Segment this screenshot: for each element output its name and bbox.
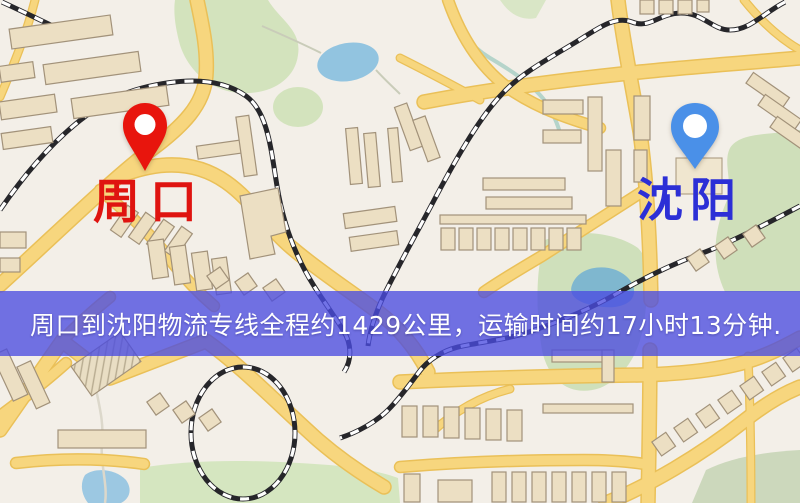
route-info-text: 周口到沈阳物流专线全程约1429公里，运输时间约17小时13分钟.	[30, 306, 782, 342]
origin-city-label: 周口	[93, 179, 207, 226]
destination-city-label: 沈阳	[637, 177, 743, 223]
map-view: 周口 沈阳 周口到沈阳物流专线全程约1429公里，运输时间约17小时13分钟.	[0, 0, 800, 503]
destination-pin-icon[interactable]	[666, 100, 724, 172]
route-info-banner: 周口到沈阳物流专线全程约1429公里，运输时间约17小时13分钟.	[0, 291, 800, 356]
map-illustration	[0, 0, 800, 503]
origin-pin-icon[interactable]	[118, 100, 172, 174]
